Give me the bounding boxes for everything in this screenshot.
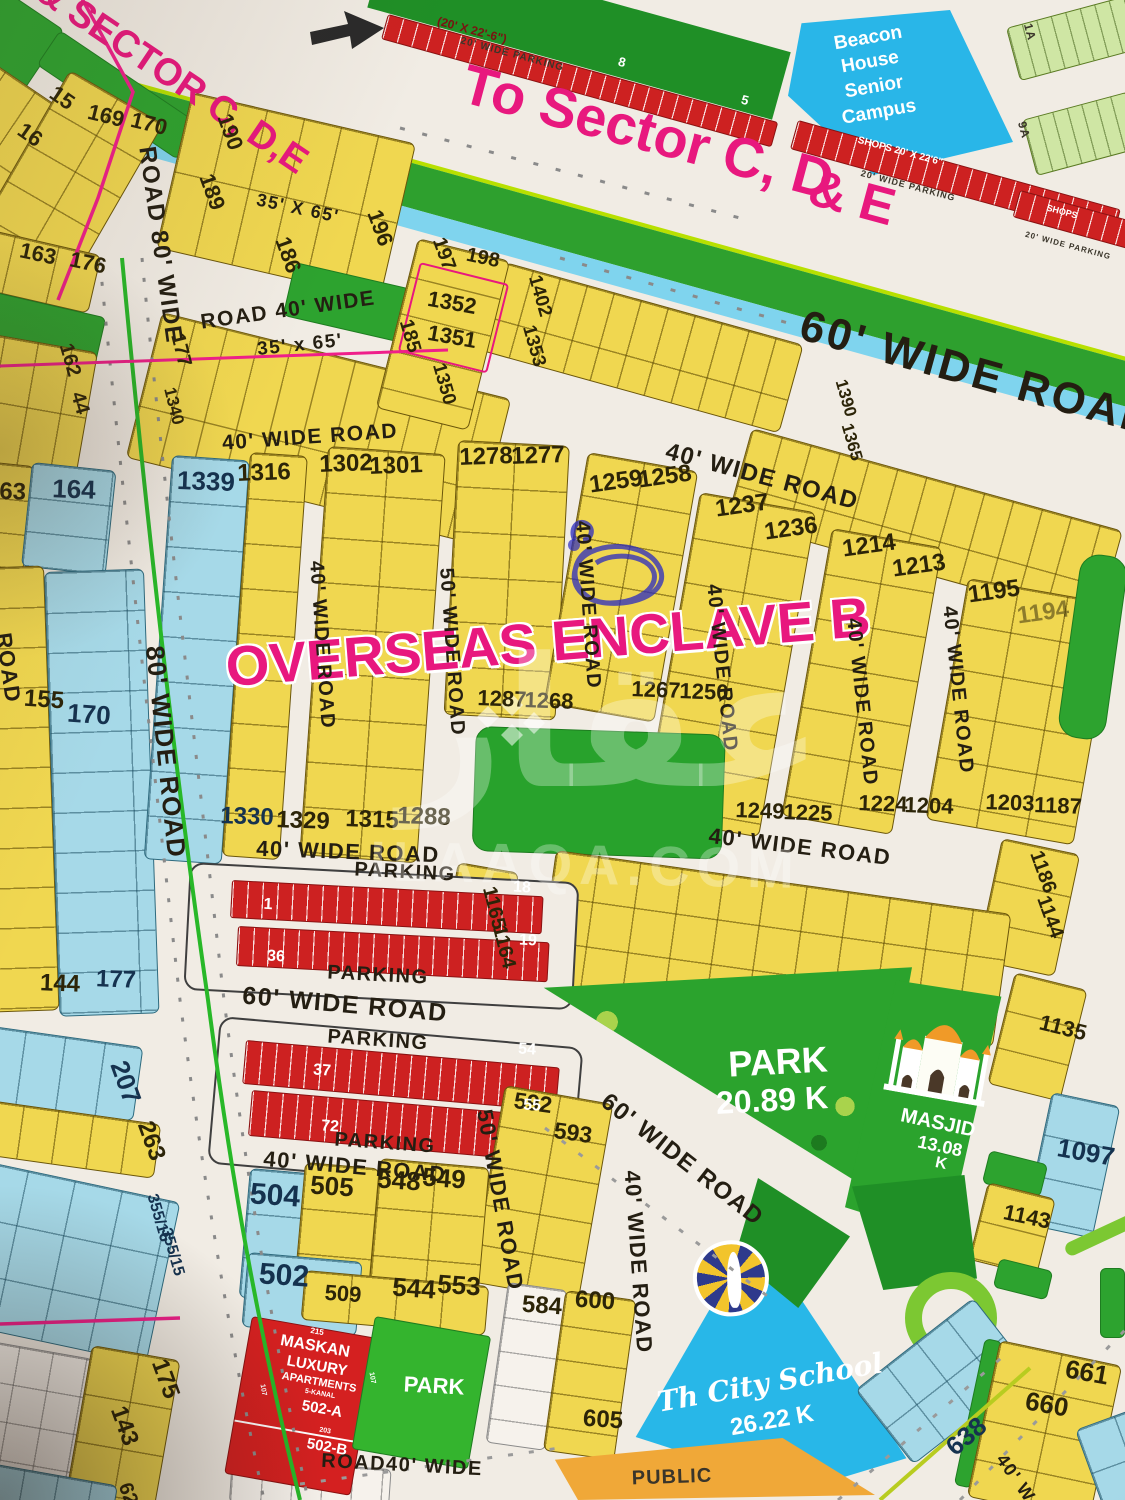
green-below-1143 bbox=[993, 1258, 1054, 1300]
label-1302: 1302 bbox=[319, 451, 373, 477]
plot-map: عقار ILAAQA.COM & SECTOR C, D,ETo Sector… bbox=[0, 0, 1125, 1500]
label-park: PARK bbox=[403, 1373, 465, 1398]
label-661: 661 bbox=[1063, 1355, 1110, 1388]
mosque-icon bbox=[879, 1000, 1003, 1108]
plot-strip-topright-2 bbox=[1022, 92, 1125, 176]
label-593: 593 bbox=[552, 1119, 593, 1147]
label-502: 502 bbox=[258, 1259, 310, 1292]
center-park bbox=[472, 726, 726, 860]
label-public: PUBLIC bbox=[631, 1466, 712, 1489]
label-1267: 1267 bbox=[631, 678, 681, 702]
label-509: 509 bbox=[324, 1282, 362, 1307]
label-1203: 1203 bbox=[985, 791, 1035, 815]
label-164: 164 bbox=[52, 475, 96, 502]
label-20-89-k: 20.89 K bbox=[715, 1081, 829, 1119]
label-163: 163 bbox=[0, 479, 26, 504]
label-177: 177 bbox=[96, 967, 137, 992]
label-155: 155 bbox=[23, 687, 65, 714]
label-1390: 1390 bbox=[833, 377, 860, 418]
label-44: 44 bbox=[67, 390, 92, 417]
label-170: 170 bbox=[66, 700, 111, 729]
label-1224: 1224 bbox=[858, 792, 908, 816]
plot-strip-topright-1 bbox=[1006, 0, 1125, 81]
plot-block-355 bbox=[0, 1160, 181, 1364]
label-1250: 1250 bbox=[679, 680, 729, 704]
label-144: 144 bbox=[40, 971, 81, 996]
label-660: 660 bbox=[1023, 1387, 1070, 1420]
label-605: 605 bbox=[582, 1407, 624, 1434]
label-36: 36 bbox=[267, 949, 286, 966]
label-1339: 1339 bbox=[177, 467, 236, 495]
label-544: 544 bbox=[391, 1274, 436, 1303]
plot-strip-170 bbox=[44, 569, 159, 1017]
label-549: 549 bbox=[421, 1164, 466, 1193]
label-park: PARK bbox=[727, 1041, 828, 1082]
label-54: 54 bbox=[518, 1041, 537, 1058]
label-505: 505 bbox=[309, 1172, 354, 1201]
label-55: 55 bbox=[523, 1097, 542, 1114]
label-40-wide-road: 40' WIDE ROAD bbox=[708, 825, 893, 869]
label-1: 1 bbox=[263, 897, 273, 913]
label-parking: PARKING bbox=[354, 859, 456, 884]
label-1268: 1268 bbox=[524, 689, 574, 713]
label-548: 548 bbox=[376, 1166, 421, 1195]
label-72: 72 bbox=[321, 1118, 340, 1135]
label-600: 600 bbox=[574, 1288, 616, 1315]
label-1330: 1330 bbox=[220, 804, 274, 830]
school-logo-quill bbox=[726, 1252, 742, 1308]
label-18: 18 bbox=[513, 880, 532, 897]
label-1287: 1287 bbox=[477, 687, 527, 711]
label-1277: 1277 bbox=[511, 443, 565, 469]
label-1329: 1329 bbox=[276, 808, 330, 834]
label-1249: 1249 bbox=[735, 799, 785, 823]
label-584: 584 bbox=[521, 1293, 563, 1320]
label-1225: 1225 bbox=[783, 801, 833, 825]
label-1288: 1288 bbox=[397, 804, 451, 830]
label-1316: 1316 bbox=[237, 460, 291, 486]
label-1204: 1204 bbox=[904, 794, 954, 818]
label-parking: PARKING bbox=[327, 962, 429, 987]
label-19: 19 bbox=[519, 933, 538, 950]
label-553: 553 bbox=[436, 1271, 481, 1300]
green-right-edge-low bbox=[1100, 1268, 1125, 1338]
label-1315: 1315 bbox=[345, 807, 399, 833]
label-1a: 1A bbox=[1022, 22, 1038, 42]
label-37: 37 bbox=[313, 1062, 332, 1079]
label-1301: 1301 bbox=[369, 453, 423, 479]
label-1187: 1187 bbox=[1034, 794, 1082, 818]
label-9a: 9A bbox=[1016, 120, 1032, 140]
label-504: 504 bbox=[249, 1179, 301, 1212]
direction-arrow-icon bbox=[310, 11, 384, 49]
label-1278: 1278 bbox=[459, 444, 513, 470]
